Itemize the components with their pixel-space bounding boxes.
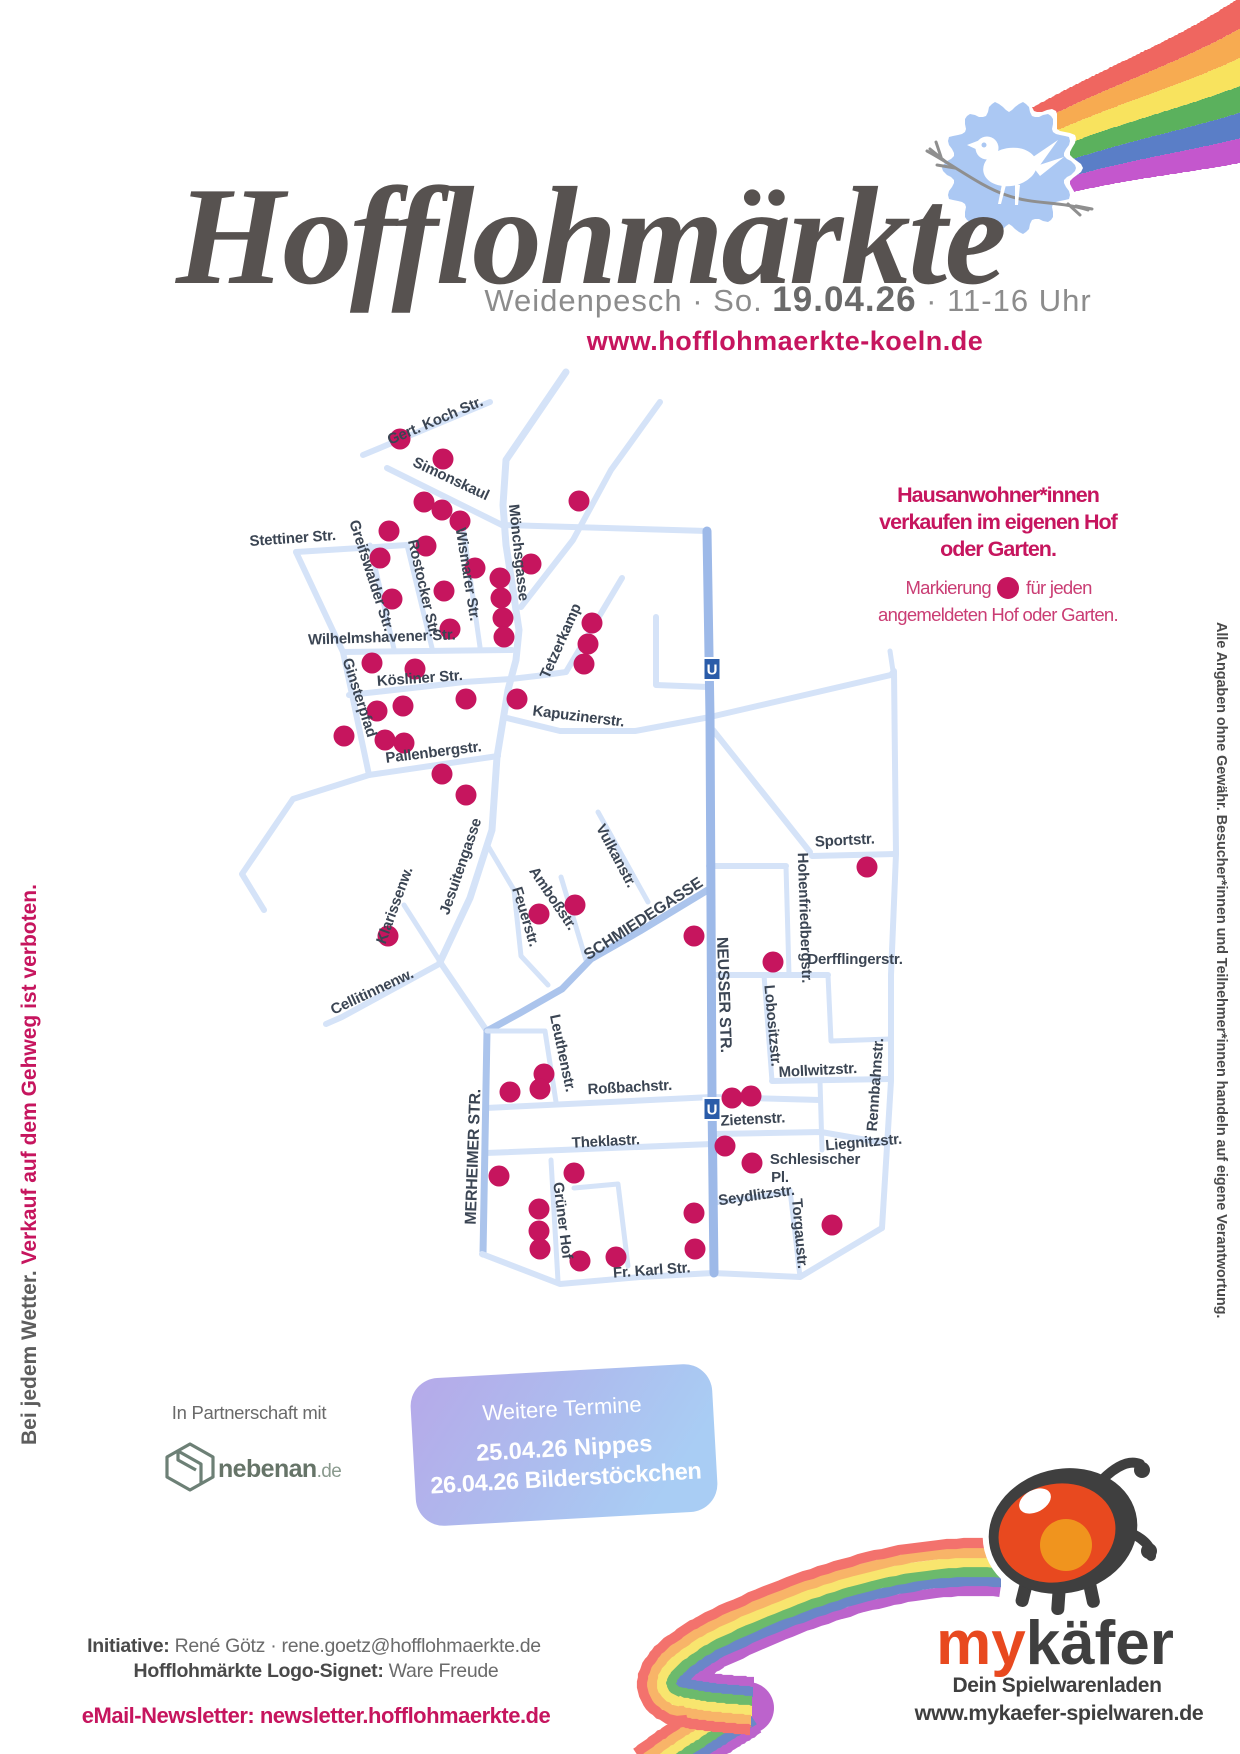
svg-text:angemeldeten Hof oder Garten.: angemeldeten Hof oder Garten. xyxy=(878,604,1118,625)
svg-text:Hofflohmärkte Logo-Signet: Wa: Hofflohmärkte Logo-Signet: Ware Freude xyxy=(134,1660,499,1682)
svg-text:Bei jedem Wetter. Verkauf auf: Bei jedem Wetter. Verkauf auf dem Gehweg… xyxy=(18,884,41,1445)
svg-text:Sportstr.: Sportstr. xyxy=(814,830,875,850)
svg-text:eMail-Newsletter: newsletter.h: eMail-Newsletter: newsletter.hofflohmaer… xyxy=(82,1703,551,1728)
svg-text:Markierung: Markierung xyxy=(905,577,991,598)
svg-text:verkaufen im eigenen Hof: verkaufen im eigenen Hof xyxy=(879,510,1118,534)
svg-text:Alle Angaben ohne Gewähr. Besu: Alle Angaben ohne Gewähr. Besucher*innen… xyxy=(1213,622,1229,1318)
svg-text:Schlesischer: Schlesischer xyxy=(770,1151,861,1168)
svg-text:oder Garten.: oder Garten. xyxy=(940,537,1056,561)
svg-text:In Partnerschaft mit: In Partnerschaft mit xyxy=(172,1402,327,1423)
svg-text:Hausanwohner*innen: Hausanwohner*innen xyxy=(897,483,1099,507)
svg-text:Dein Spielwarenladen: Dein Spielwarenladen xyxy=(952,1674,1161,1697)
svg-text:für jeden: für jeden xyxy=(1026,577,1092,598)
svg-text:Derfflingerstr.: Derfflingerstr. xyxy=(807,951,902,968)
svg-text:U: U xyxy=(707,1102,718,1119)
svg-text:U: U xyxy=(707,662,718,679)
svg-text:Initiative: René Götz · rene.: Initiative: René Götz · rene.goetz@hoffl… xyxy=(87,1635,541,1657)
svg-text:Theklastr.: Theklastr. xyxy=(571,1131,640,1152)
svg-text:Zietenstr.: Zietenstr. xyxy=(720,1109,786,1129)
svg-text:www.mykaefer-spielwaren.de: www.mykaefer-spielwaren.de xyxy=(914,1701,1204,1725)
svg-text:www.hofflohmaerkte-koeln.de: www.hofflohmaerkte-koeln.de xyxy=(586,326,984,356)
svg-text:mykäfer: mykäfer xyxy=(936,1609,1174,1678)
svg-text:Weidenpesch · So. 19.04.26 · 1: Weidenpesch · So. 19.04.26 · 11-16 Uhr xyxy=(484,280,1091,319)
